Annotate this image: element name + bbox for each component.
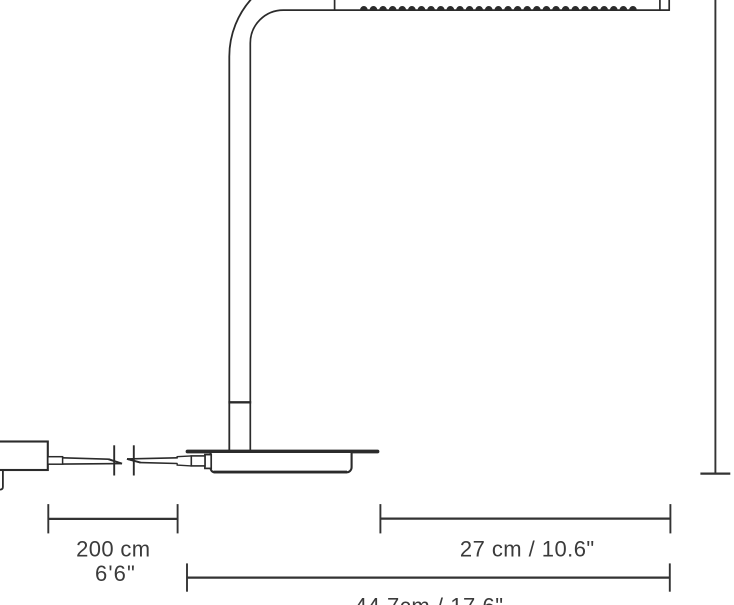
svg-text:27 cm / 10.6": 27 cm / 10.6" <box>460 537 595 562</box>
svg-text:200 cm: 200 cm <box>76 537 150 562</box>
svg-text:44.7cm / 17.6": 44.7cm / 17.6" <box>355 594 504 605</box>
svg-text:6'6": 6'6" <box>95 561 136 586</box>
